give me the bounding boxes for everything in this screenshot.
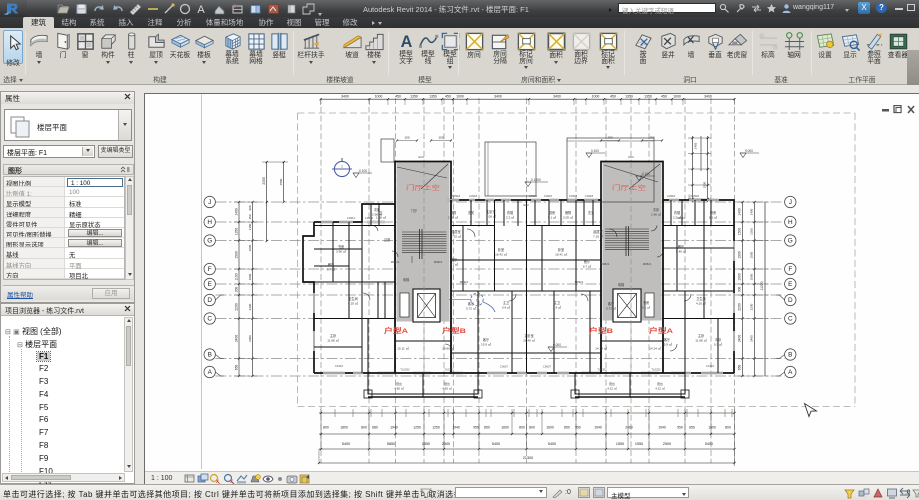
- svg-text:14.14 ㎡: 14.14 ㎡: [649, 345, 662, 350]
- svg-text:1000: 1000: [375, 95, 383, 99]
- svg-text:-0.100: -0.100: [641, 172, 650, 176]
- svg-text:H: H: [788, 219, 793, 226]
- svg-text:800: 800: [323, 426, 329, 430]
- svg-text:M0921: M0921: [575, 280, 584, 284]
- svg-text:3.9 ㎡: 3.9 ㎡: [502, 304, 511, 309]
- svg-text:厨房: 厨房: [710, 210, 717, 215]
- svg-text:11.88 ㎡: 11.88 ㎡: [695, 337, 707, 342]
- svg-text:1100: 1100: [234, 273, 238, 280]
- svg-text:1550: 1550: [422, 442, 430, 446]
- svg-text:卫生间: 卫生间: [696, 296, 705, 301]
- svg-text:4.22 ㎡: 4.22 ㎡: [655, 385, 664, 390]
- svg-text:C0918: C0918: [667, 194, 676, 198]
- svg-text:2200: 2200: [248, 303, 252, 310]
- svg-text:2500: 2500: [442, 442, 450, 446]
- svg-text:H: H: [207, 219, 212, 226]
- svg-text:3400: 3400: [704, 95, 712, 99]
- svg-text:TL0202: TL0202: [651, 368, 661, 372]
- svg-text:餐厅: 餐厅: [328, 262, 335, 267]
- svg-text:0.000: 0.000: [553, 343, 561, 347]
- svg-text:阳台: 阳台: [396, 381, 402, 386]
- svg-text:G: G: [788, 238, 793, 245]
- svg-text:5.1 ㎡: 5.1 ㎡: [642, 304, 651, 309]
- svg-text:主卫: 主卫: [554, 300, 561, 305]
- svg-text:5.72 ㎡: 5.72 ㎡: [606, 305, 617, 310]
- svg-text:4.65 ㎡: 4.65 ㎡: [442, 385, 451, 390]
- svg-text:餐厅: 餐厅: [451, 257, 458, 262]
- svg-text:书房: 书房: [643, 300, 650, 305]
- svg-text:1500: 1500: [750, 251, 754, 258]
- svg-text:GC2: GC2: [523, 203, 529, 207]
- svg-text:800: 800: [361, 426, 367, 430]
- svg-text:800: 800: [519, 426, 525, 430]
- svg-text:C1516: C1516: [335, 364, 344, 368]
- svg-text:1000: 1000: [750, 273, 754, 280]
- svg-text:18.41 ㎡: 18.41 ㎡: [495, 251, 508, 256]
- svg-text:650: 650: [738, 365, 742, 371]
- svg-text:J: J: [789, 199, 792, 206]
- svg-text:厨房: 厨房: [549, 210, 556, 215]
- svg-text:1900: 1900: [738, 251, 742, 259]
- svg-text:C0915: C0915: [544, 194, 553, 198]
- svg-text:次卧: 次卧: [653, 207, 660, 212]
- svg-text:卧室: 卧室: [498, 247, 505, 252]
- svg-text:-0.100: -0.100: [358, 169, 367, 173]
- svg-text:2400: 2400: [738, 335, 742, 343]
- svg-text:D: D: [788, 297, 793, 304]
- svg-text:过道: 过道: [384, 237, 391, 242]
- svg-text:150: 150: [438, 135, 443, 139]
- svg-text:7.15 ㎡: 7.15 ㎡: [451, 233, 462, 238]
- svg-text:C0912: C0912: [347, 216, 356, 220]
- svg-text:1350: 1350: [234, 228, 238, 236]
- svg-text:26.40 ㎡: 26.40 ㎡: [523, 337, 536, 342]
- svg-text:8.7 ㎡: 8.7 ㎡: [583, 263, 592, 268]
- svg-text:阳台: 阳台: [609, 381, 615, 386]
- svg-text:C0910: C0910: [365, 216, 374, 220]
- svg-text:3.96 ㎡: 3.96 ㎡: [336, 248, 347, 253]
- svg-text:1500: 1500: [279, 178, 283, 185]
- svg-text:8.46 ㎡: 8.46 ㎡: [676, 248, 687, 253]
- svg-text:M0921: M0921: [460, 280, 469, 284]
- svg-text:5400: 5400: [548, 442, 556, 446]
- svg-text:-0.1000: -0.1000: [530, 178, 541, 182]
- svg-text:9.2 ㎡: 9.2 ㎡: [714, 341, 723, 346]
- svg-text:18.41 ㎡: 18.41 ㎡: [555, 251, 568, 256]
- svg-text:5.72 ㎡: 5.72 ㎡: [466, 305, 477, 310]
- svg-text:5.1 ㎡: 5.1 ㎡: [709, 214, 718, 219]
- svg-text:1600: 1600: [708, 426, 716, 430]
- svg-text:1350: 1350: [248, 223, 252, 230]
- svg-text:1400: 1400: [750, 208, 754, 215]
- svg-text:150: 150: [404, 135, 409, 139]
- svg-text:1350: 1350: [644, 95, 652, 99]
- svg-text:C0910: C0910: [677, 216, 686, 220]
- svg-text:2400: 2400: [234, 335, 238, 343]
- svg-text:950: 950: [473, 426, 479, 430]
- svg-text:1940: 1940: [390, 426, 398, 430]
- svg-text:A: A: [208, 369, 213, 376]
- svg-text:1600: 1600: [501, 426, 509, 430]
- svg-text:阳台: 阳台: [657, 381, 663, 386]
- svg-text:C1516: C1516: [706, 364, 715, 368]
- svg-text:1350: 1350: [429, 95, 437, 99]
- svg-text:850: 850: [564, 426, 570, 430]
- svg-text:7.15 ㎡: 7.15 ㎡: [593, 233, 604, 238]
- svg-text:450: 450: [248, 214, 252, 219]
- svg-text:150: 150: [607, 135, 612, 139]
- svg-text:1550: 1550: [635, 442, 643, 446]
- svg-text:A: A: [197, 4, 205, 15]
- svg-text:1250: 1250: [413, 426, 421, 430]
- svg-text:850: 850: [484, 426, 490, 430]
- svg-text:户型A: 户型A: [649, 326, 673, 335]
- svg-text:E: E: [208, 281, 212, 288]
- svg-text:1350: 1350: [625, 95, 633, 99]
- svg-text:650: 650: [234, 365, 238, 371]
- svg-text:1400: 1400: [234, 208, 238, 216]
- svg-text:餐厅: 餐厅: [584, 259, 591, 264]
- svg-text:C0607: C0607: [500, 365, 509, 369]
- svg-text:玄关: 玄关: [588, 210, 595, 215]
- svg-text:2.96 ㎡: 2.96 ㎡: [651, 211, 662, 216]
- svg-text:B: B: [208, 352, 212, 359]
- svg-text:950: 950: [677, 426, 683, 430]
- svg-text:门厅上空: 门厅上空: [406, 184, 440, 192]
- svg-text:1.98 ㎡: 1.98 ㎡: [376, 214, 387, 219]
- svg-text:2.05 ㎡: 2.05 ㎡: [563, 214, 574, 219]
- svg-text:2200: 2200: [738, 303, 742, 311]
- svg-text:户型B: 户型B: [442, 326, 466, 335]
- svg-text:衣帽: 衣帽: [674, 210, 681, 215]
- svg-text:J: J: [208, 199, 211, 206]
- svg-text:14.14 ㎡: 14.14 ㎡: [595, 345, 608, 350]
- svg-text:GC2: GC2: [418, 155, 424, 159]
- svg-text:卫生间: 卫生间: [348, 296, 357, 301]
- svg-text:户型B: 户型B: [589, 326, 613, 335]
- svg-text:M0821: M0821: [391, 260, 400, 264]
- svg-text:5400: 5400: [705, 442, 713, 446]
- svg-text:C0607: C0607: [543, 365, 552, 369]
- svg-text:F: F: [788, 266, 792, 273]
- svg-text:C0918: C0918: [585, 194, 594, 198]
- svg-text:5400: 5400: [342, 442, 350, 446]
- svg-text:15.9 ㎡: 15.9 ㎡: [481, 341, 492, 346]
- svg-text:起居室: 起居室: [593, 229, 603, 234]
- svg-text:主卧室: 主卧室: [486, 209, 496, 214]
- svg-text:M0821: M0821: [601, 262, 610, 266]
- svg-text:客厅: 客厅: [608, 301, 615, 306]
- svg-text:15.9 ㎡: 15.9 ㎡: [662, 341, 673, 346]
- svg-text:1500: 1500: [703, 181, 707, 188]
- svg-text:2.2 ㎡: 2.2 ㎡: [506, 214, 515, 219]
- svg-text:2400: 2400: [248, 335, 252, 342]
- svg-text:卧室: 卧室: [558, 247, 565, 252]
- svg-text:1800: 1800: [340, 426, 348, 430]
- svg-text:450: 450: [661, 95, 667, 99]
- svg-text:6.7 ㎡: 6.7 ㎡: [327, 266, 336, 271]
- svg-text:800: 800: [725, 426, 731, 430]
- svg-text:5850: 5850: [387, 442, 395, 446]
- svg-text:电梯: 电梯: [618, 282, 625, 287]
- svg-text:2200: 2200: [750, 303, 754, 310]
- svg-text:1350: 1350: [750, 228, 754, 235]
- svg-text:1000: 1000: [592, 95, 600, 99]
- svg-text:C0918: C0918: [569, 194, 578, 198]
- svg-text:B: B: [788, 352, 792, 359]
- svg-text:户型A: 户型A: [384, 326, 408, 335]
- svg-text:15.11 ㎡: 15.11 ㎡: [397, 345, 409, 350]
- svg-text:GC2: GC2: [628, 155, 634, 159]
- svg-text:M0821: M0821: [643, 262, 652, 266]
- svg-text:4.20 ㎡: 4.20 ㎡: [348, 300, 359, 305]
- svg-text:F: F: [208, 266, 212, 273]
- svg-text:1350: 1350: [410, 95, 418, 99]
- svg-text:TL0202: TL0202: [400, 368, 410, 372]
- svg-text:450: 450: [395, 95, 401, 99]
- svg-text:1250: 1250: [432, 426, 440, 430]
- svg-text:21300: 21300: [523, 456, 533, 460]
- svg-text:4.22 ㎡: 4.22 ㎡: [607, 385, 616, 390]
- svg-text:主卫: 主卫: [503, 300, 510, 305]
- svg-text:1000: 1000: [456, 95, 464, 99]
- svg-text:阳台: 阳台: [444, 381, 450, 386]
- svg-text:3400: 3400: [494, 95, 502, 99]
- svg-text:4.80 ㎡: 4.80 ㎡: [394, 385, 403, 390]
- svg-text:1455: 1455: [693, 142, 697, 149]
- svg-text:4.20 ㎡: 4.20 ㎡: [696, 300, 707, 305]
- svg-text:1400: 1400: [738, 208, 742, 216]
- svg-text:2200: 2200: [234, 303, 238, 311]
- svg-text:11370: 11370: [760, 281, 764, 290]
- svg-text:14.80 ㎡: 14.80 ㎡: [442, 345, 455, 350]
- svg-text:D: D: [207, 297, 212, 304]
- svg-text:C0918: C0918: [691, 194, 700, 198]
- svg-text:书房: 书房: [338, 244, 345, 249]
- svg-text:9.000: 9.000: [745, 149, 753, 153]
- svg-text:主卧: 主卧: [698, 333, 705, 338]
- svg-text:A: A: [788, 369, 793, 376]
- svg-text:储物: 储物: [565, 210, 572, 215]
- svg-text:2400: 2400: [750, 335, 754, 342]
- svg-text:C: C: [207, 316, 212, 323]
- svg-text:门厅: 门厅: [411, 208, 418, 213]
- svg-text:650: 650: [689, 426, 695, 430]
- svg-text:1500: 1500: [738, 228, 742, 236]
- svg-text:800: 800: [529, 426, 535, 430]
- svg-text:11.88 ㎡: 11.88 ㎡: [327, 337, 339, 342]
- svg-text:0.100: 0.100: [591, 149, 599, 153]
- svg-text:1940: 1940: [594, 426, 602, 430]
- svg-text:储物: 储物: [450, 210, 457, 215]
- svg-text:1000: 1000: [248, 273, 252, 280]
- svg-text:2300: 2300: [262, 177, 266, 185]
- svg-text:1600: 1600: [546, 426, 554, 430]
- svg-text:2500: 2500: [663, 442, 671, 446]
- svg-text:玄关: 玄关: [468, 210, 475, 215]
- svg-text:2.05 ㎡: 2.05 ㎡: [448, 214, 459, 219]
- svg-text:C0918: C0918: [469, 194, 478, 198]
- svg-text:电梯: 电梯: [403, 277, 410, 282]
- svg-text:450: 450: [445, 95, 451, 99]
- svg-text:5400: 5400: [492, 442, 500, 446]
- svg-text:C: C: [788, 316, 793, 323]
- svg-text:1940: 1940: [658, 426, 666, 430]
- svg-text:1000: 1000: [738, 273, 742, 281]
- svg-text:M0821: M0821: [434, 260, 443, 264]
- svg-text:主卧室: 主卧室: [524, 333, 534, 338]
- svg-text:8.7 ㎡: 8.7 ㎡: [450, 261, 459, 266]
- svg-text:TL0202: TL0202: [597, 368, 607, 372]
- svg-text:5.1 ㎡: 5.1 ㎡: [548, 214, 557, 219]
- svg-text:300: 300: [234, 287, 238, 293]
- svg-text:3.9 ㎡: 3.9 ㎡: [553, 304, 562, 309]
- svg-text:1550: 1550: [616, 442, 624, 446]
- svg-text:E: E: [788, 281, 792, 288]
- svg-text:1000: 1000: [248, 244, 252, 251]
- svg-text:C0915: C0915: [529, 194, 538, 198]
- svg-text:次卧: 次卧: [715, 337, 722, 342]
- svg-text:1: 1: [341, 163, 344, 168]
- svg-text:450: 450: [610, 95, 616, 99]
- svg-text:餐厅: 餐厅: [678, 244, 685, 249]
- svg-text:G: G: [207, 238, 212, 245]
- svg-text:1000: 1000: [673, 95, 681, 99]
- svg-text:客厅: 客厅: [664, 337, 671, 342]
- svg-text:C0918: C0918: [452, 194, 461, 198]
- svg-text:门厅上空: 门厅上空: [612, 184, 646, 192]
- svg-text:1.06 ㎡: 1.06 ㎡: [486, 213, 497, 218]
- svg-text:300: 300: [738, 287, 742, 293]
- svg-text:3400: 3400: [553, 95, 561, 99]
- svg-text:1500: 1500: [234, 251, 238, 259]
- svg-text:680: 680: [372, 426, 378, 430]
- svg-text:衣帽: 衣帽: [507, 210, 514, 215]
- svg-text:起居室: 起居室: [451, 229, 461, 234]
- svg-text:客厅: 客厅: [483, 337, 490, 342]
- svg-text:TL0202: TL0202: [444, 368, 454, 372]
- svg-text:2460: 2460: [625, 426, 633, 430]
- svg-text:3400: 3400: [341, 95, 349, 99]
- svg-text:900: 900: [248, 205, 252, 210]
- svg-text:主卧: 主卧: [330, 333, 337, 338]
